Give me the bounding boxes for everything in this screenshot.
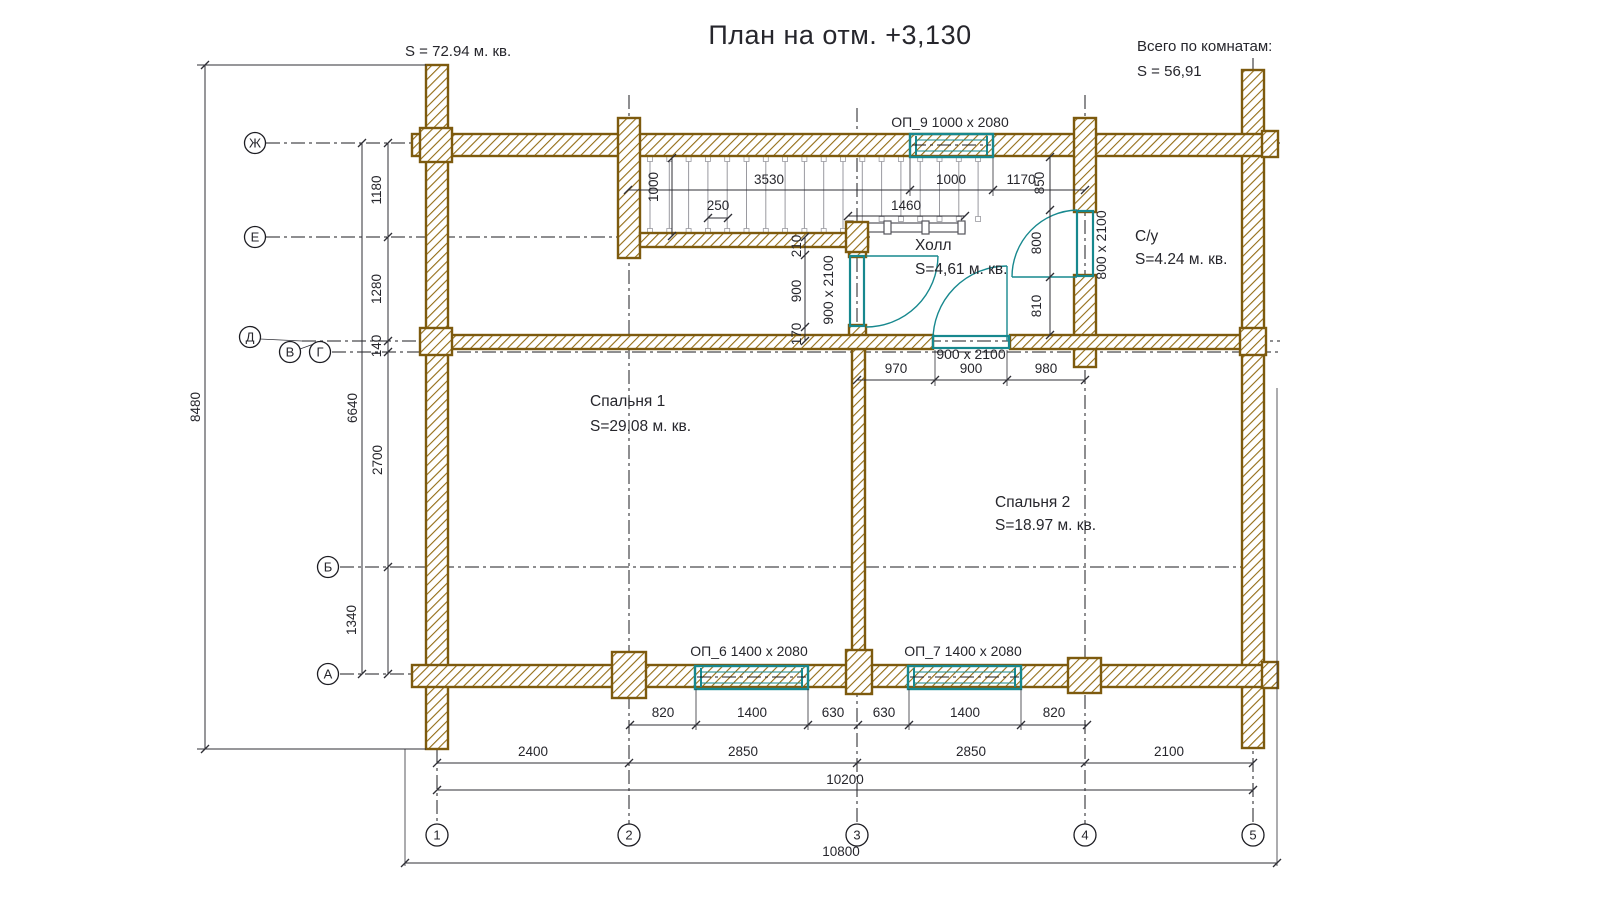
room-name: Холл (915, 237, 952, 254)
floor-plan-page: Ж Е Д В Г Б А 1 2 3 4 5 План на отм. +3,… (0, 0, 1600, 900)
dim-label: 800 (1029, 232, 1044, 255)
axis-label: Ж (249, 136, 261, 151)
dim-label: 2100 (1154, 744, 1184, 759)
dim-label: 630 (822, 705, 845, 720)
window-label: ОП_7 1400 x 2080 (904, 643, 1022, 659)
dim-label: 1280 (369, 274, 384, 304)
stair-treads (648, 157, 981, 234)
room-labels: Спальня 1 S=29.08 м. кв. Спальня 2 S=18.… (590, 228, 1227, 534)
dim-label: 140 (369, 335, 384, 358)
axis-label: В (286, 345, 295, 360)
axis-label: 1 (433, 828, 440, 843)
dim-label: 3530 (754, 172, 784, 187)
window-label: ОП_6 1400 x 2080 (690, 643, 808, 659)
dim-label: 10200 (826, 772, 864, 787)
dim-label: 1400 (737, 705, 767, 720)
axis-label: Е (251, 230, 260, 245)
dim-label: 1180 (369, 175, 384, 204)
dim-label: 1340 (344, 605, 359, 635)
dim-label: 970 (885, 361, 908, 376)
walls (412, 65, 1278, 749)
dim-label: 2700 (370, 445, 385, 475)
dim-label: 170 (789, 323, 804, 346)
dim-label: 820 (1043, 705, 1066, 720)
dim-label: 1000 (646, 172, 661, 202)
dim-label: 2850 (956, 744, 986, 759)
axis-label: 2 (625, 828, 632, 843)
dim-label: 2400 (518, 744, 548, 759)
door-label: 900 x 2100 (936, 346, 1005, 362)
axis-label: Г (316, 345, 323, 360)
room-area: S=4.24 м. кв. (1135, 251, 1227, 268)
axis-label: Б (324, 560, 333, 575)
wall-left (426, 65, 448, 749)
dimension-labels: 8480 6640 1180 1280 140 2700 1340 1000 3… (188, 172, 1184, 859)
staircase (648, 157, 981, 235)
wall-axis2 (618, 118, 640, 258)
dim-label: 1400 (950, 705, 980, 720)
dim-label: 250 (707, 198, 730, 213)
page-title: План на отм. +3,130 (708, 20, 971, 50)
dim-label: 210 (789, 235, 804, 258)
dim-label: 10800 (822, 844, 860, 859)
axis-label: 4 (1081, 828, 1088, 843)
wall-g-west (448, 335, 933, 349)
axis-label: А (324, 667, 333, 682)
wall-right (1242, 70, 1264, 748)
wall-g-east (1010, 335, 1242, 349)
dim-label: 8480 (188, 392, 203, 422)
room-area: S=29.08 м. кв. (590, 418, 691, 435)
dim-label: 630 (873, 705, 896, 720)
dim-label: 810 (1029, 295, 1044, 318)
window-label: ОП_9 1000 x 2080 (891, 114, 1009, 130)
rooms-total-area: S = 56,91 (1137, 63, 1202, 80)
door-hall-south (933, 266, 1009, 348)
wall-axis4-lower (1074, 275, 1096, 367)
axis-label: 3 (853, 828, 860, 843)
wall-top (412, 134, 1264, 156)
door-label: 900 х 2100 (820, 255, 836, 324)
wall-axis4-upper (1074, 118, 1096, 212)
room-name: Спальня 2 (995, 494, 1070, 511)
dim-label: 820 (652, 705, 675, 720)
room-area: S=4,61 м. кв. (915, 261, 1007, 278)
dim-label: 900 (789, 280, 804, 303)
axis-label: Д (246, 330, 255, 345)
dim-label: 1000 (936, 172, 966, 187)
door-su (1012, 210, 1093, 277)
room-name: Спальня 1 (590, 393, 665, 410)
wall-bottom (412, 665, 1264, 687)
axis-label: 5 (1249, 828, 1256, 843)
left-area-total: S = 72.94 м. кв. (405, 43, 511, 60)
rooms-total-heading: Всего по комнатам: (1137, 38, 1272, 55)
room-area: S=18.97 м. кв. (995, 517, 1096, 534)
dim-label: 2850 (728, 744, 758, 759)
room-name: С/у (1135, 228, 1159, 245)
dim-label: 850 (1032, 172, 1047, 195)
door-label: 800 x 2100 (1093, 210, 1109, 279)
dim-label: 6640 (345, 393, 360, 423)
dim-label: 900 (960, 361, 983, 376)
dim-label: 1460 (891, 198, 921, 213)
wall-stair-south (640, 233, 868, 247)
titles: План на отм. +3,130 S = 72.94 м. кв. Все… (405, 20, 1272, 80)
floor-plan-canvas: Ж Е Д В Г Б А 1 2 3 4 5 План на отм. +3,… (0, 0, 1600, 900)
dim-label: 980 (1035, 361, 1058, 376)
wall-axis3-lower (852, 349, 865, 687)
opening-labels: ОП_9 1000 x 2080 ОП_6 1400 x 2080 ОП_7 1… (690, 114, 1109, 659)
